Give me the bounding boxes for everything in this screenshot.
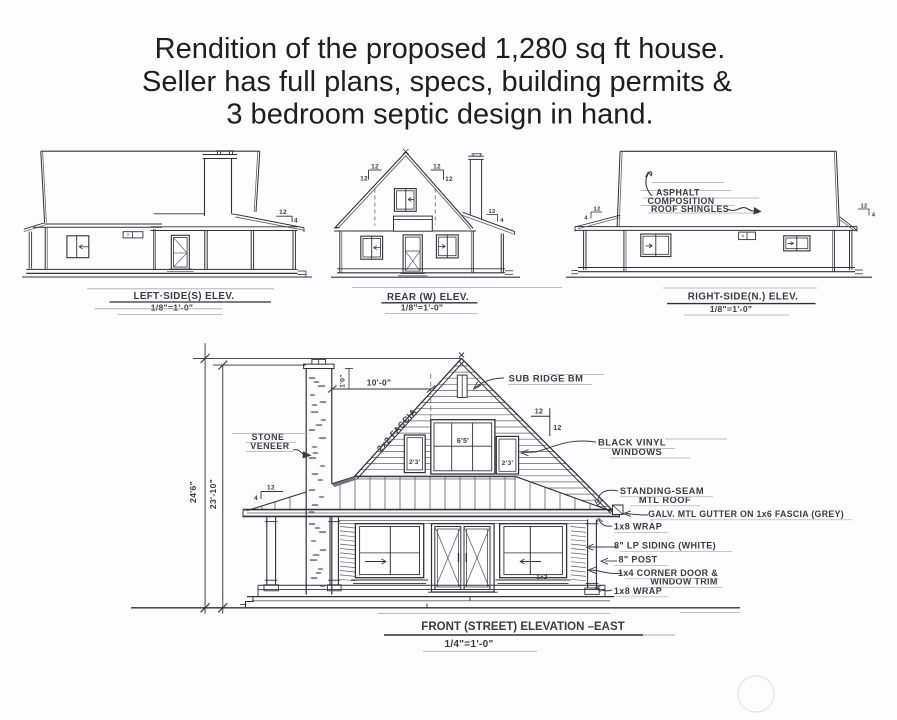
svg-text:10'-0": 10'-0" (367, 378, 392, 388)
svg-text:WINDOW TRIM: WINDOW TRIM (650, 577, 717, 587)
svg-text:FRONT (STREET) ELEVATION –EAST: FRONT (STREET) ELEVATION –EAST (421, 621, 624, 633)
svg-text:12: 12 (360, 176, 368, 183)
svg-text:GALV. MTL GUTTER ON 1x6 FASCIA: GALV. MTL GUTTER ON 1x6 FASCIA (GREY) (648, 509, 844, 519)
svg-text:4: 4 (254, 495, 258, 502)
svg-text:4: 4 (294, 218, 298, 225)
svg-text:Seller has full plans, specs,: Seller has full plans, specs, building p… (142, 66, 732, 98)
svg-text:4: 4 (584, 216, 588, 222)
svg-text:8" LP SIDING (WHITE): 8" LP SIDING (WHITE) (614, 541, 716, 551)
svg-text:8" POST: 8" POST (618, 555, 657, 565)
svg-text:1/8"=1'-0": 1/8"=1'-0" (151, 303, 194, 313)
svg-text:2'3': 2'3' (409, 459, 421, 466)
svg-text:?: ? (126, 233, 129, 238)
svg-text:1/4"=1'-0": 1/4"=1'-0" (444, 639, 493, 650)
svg-text:23'-10": 23'-10" (208, 479, 218, 509)
svg-text:1/8"=1'-0": 1/8"=1'-0" (710, 304, 753, 314)
svg-text:12: 12 (553, 425, 561, 432)
svg-text:=: = (741, 234, 744, 240)
svg-text:RIGHT-SIDE(N.) ELEV.: RIGHT-SIDE(N.) ELEV. (688, 292, 799, 303)
svg-text:1x8 WRAP: 1x8 WRAP (614, 586, 662, 596)
svg-text:12: 12 (445, 176, 453, 183)
svg-text:6'5': 6'5' (457, 438, 469, 445)
svg-text:ROOF SHINGLES: ROOF SHINGLES (651, 204, 729, 214)
svg-text:24'6": 24'6" (188, 481, 198, 503)
svg-text:1'0": 1'0" (340, 374, 347, 388)
svg-text:BLACK VINYL: BLACK VINYL (598, 438, 666, 448)
svg-text:12: 12 (371, 164, 379, 171)
svg-text:12: 12 (279, 209, 287, 216)
svg-text:1/8"=1'-0": 1/8"=1'-0" (401, 302, 444, 312)
svg-text:12: 12 (433, 164, 441, 171)
svg-text:Rendition of the proposed 1,28: Rendition of the proposed 1,280 sq ft ho… (155, 33, 726, 65)
svg-text:SUB RIDGE BM: SUB RIDGE BM (509, 374, 584, 384)
svg-text:1x8 WRAP: 1x8 WRAP (614, 522, 662, 532)
svg-text:3 bedroom septic design in han: 3 bedroom septic design in hand. (226, 99, 653, 131)
svg-text:LEFT·SIDE(S) ELEV.: LEFT·SIDE(S) ELEV. (133, 291, 234, 302)
svg-text:4: 4 (500, 218, 504, 224)
svg-text:2'3': 2'3' (502, 460, 514, 467)
svg-text:12: 12 (535, 409, 543, 416)
svg-text:12: 12 (267, 485, 275, 492)
svg-text:4: 4 (872, 213, 876, 219)
